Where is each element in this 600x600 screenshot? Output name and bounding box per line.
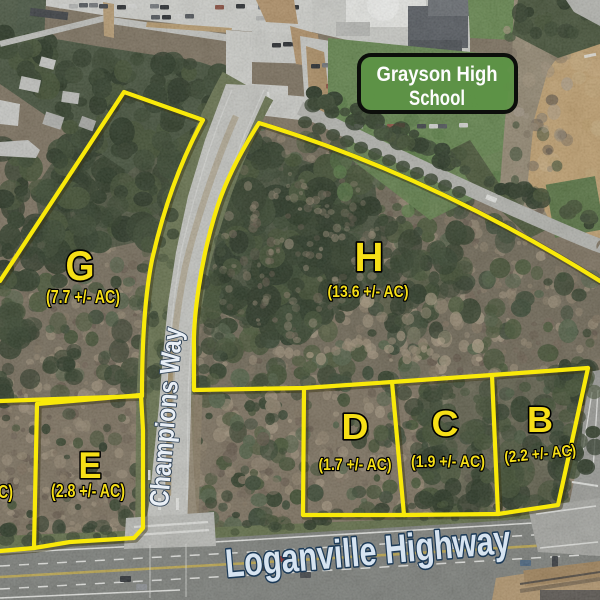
svg-text:D: D [342,406,369,447]
svg-text:E: E [79,445,102,486]
svg-text:Grayson High: Grayson High [377,63,498,86]
svg-text:(1.9 +/- AC): (1.9 +/- AC) [411,452,485,471]
svg-text:(3.1 +/- AC): (3.1 +/- AC) [0,482,13,502]
svg-text:(7.7 +/- AC): (7.7 +/- AC) [46,287,120,307]
svg-text:C: C [432,403,459,444]
svg-text:(2.8 +/- AC): (2.8 +/- AC) [51,481,125,501]
svg-text:School: School [409,87,465,110]
svg-text:B: B [527,399,553,440]
svg-text:H: H [355,234,384,280]
svg-text:G: G [66,242,95,289]
svg-text:(1.7 +/- AC): (1.7 +/- AC) [319,455,392,474]
svg-text:(13.6 +/- AC): (13.6 +/- AC) [328,282,409,301]
